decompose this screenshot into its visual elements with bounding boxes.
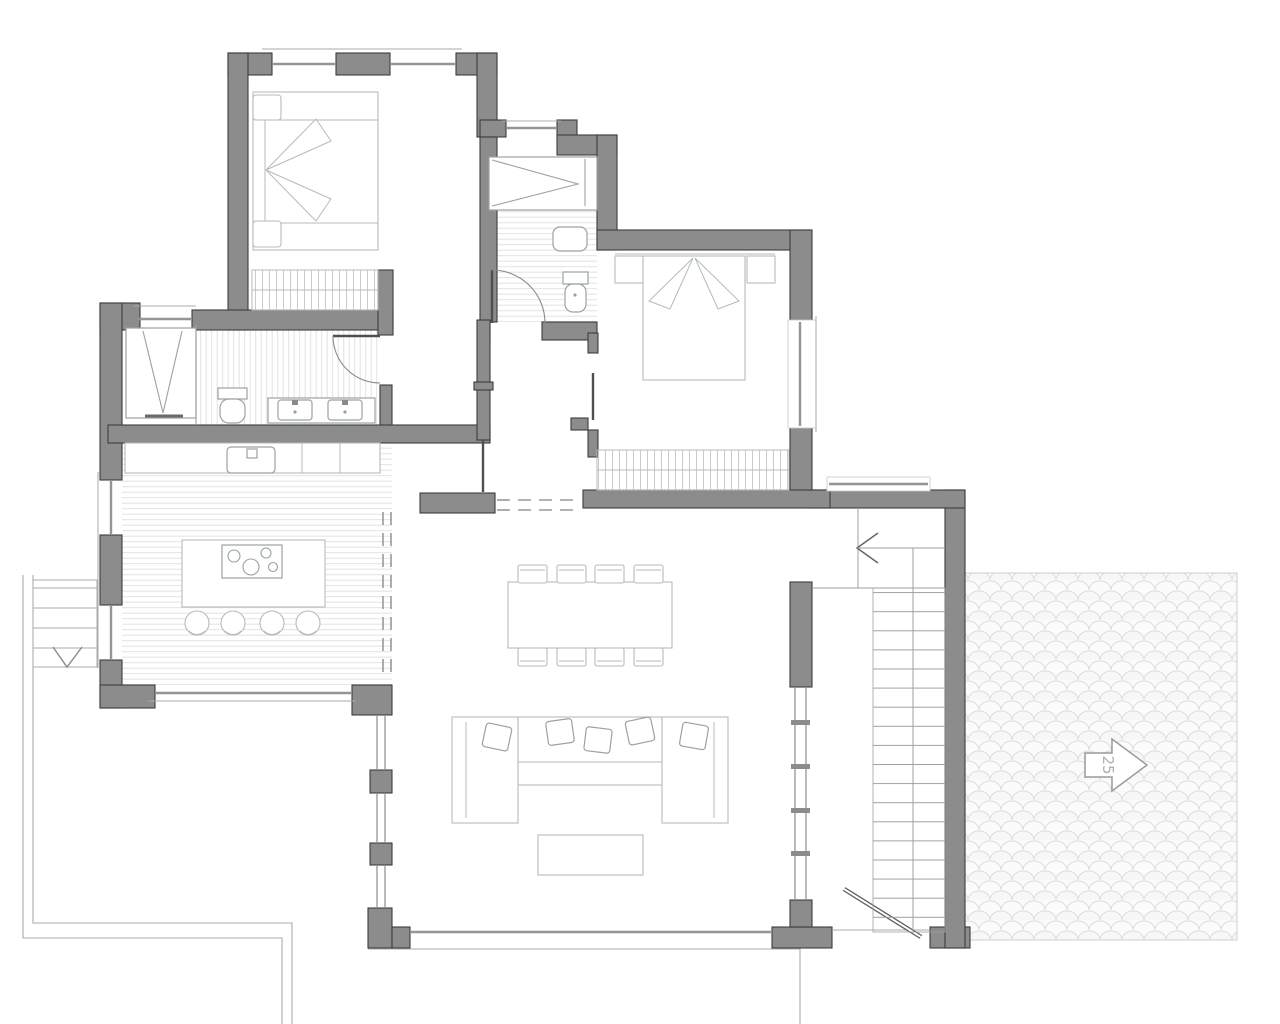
- toilet1-cistern: [218, 388, 247, 399]
- floor-plan-canvas: 25: [0, 0, 1280, 1024]
- exterior-stairs-outline: [33, 580, 97, 667]
- wall-living-west-pier2: [370, 843, 392, 865]
- toilet2-flush: [573, 293, 576, 296]
- bedroom2: [597, 254, 789, 490]
- chair-1: [518, 565, 547, 583]
- wall-bathroom-top: [192, 310, 393, 330]
- wall-smallbath-top-jamb: [557, 120, 577, 137]
- vanity: [268, 398, 375, 423]
- bed1-pillow-bottom: [253, 221, 281, 247]
- dining-table: [508, 582, 672, 648]
- chair-4: [634, 565, 663, 583]
- drain-right: [343, 410, 346, 413]
- tap-right-icon: [342, 400, 348, 405]
- partition-mullion-2: [791, 764, 810, 769]
- dining-chairs-top: [518, 565, 663, 583]
- wall-living-west-pier1: [370, 770, 392, 793]
- wall-living-south-right: [772, 927, 832, 948]
- toilet1-bowl: [220, 399, 245, 423]
- chair-2: [557, 565, 586, 583]
- patio: 25: [963, 573, 1237, 940]
- pillow-3: [584, 727, 613, 754]
- stool-3: [260, 611, 284, 635]
- bed2-nightstand-right: [747, 256, 775, 283]
- bed2-nightstand-left: [615, 256, 643, 283]
- partition-mullion-1: [791, 720, 810, 725]
- bed2: [643, 256, 745, 380]
- staircase: [813, 508, 945, 932]
- shower2-tray: [489, 157, 597, 210]
- stool-4: [296, 611, 320, 635]
- dining-area: [508, 565, 672, 666]
- wall-kitchen-top: [108, 425, 490, 443]
- bed1-pillow-top: [253, 95, 281, 120]
- wall-west-upper: [100, 303, 122, 480]
- toilet2-cistern: [563, 272, 588, 284]
- chair-7: [595, 648, 624, 666]
- tap-left-icon: [292, 400, 298, 405]
- chair-8: [634, 648, 663, 666]
- living-room: [452, 717, 728, 875]
- pillow-4: [625, 717, 655, 746]
- wall-stair-east: [945, 490, 965, 948]
- stair-treads: [873, 588, 945, 932]
- chair-5: [518, 648, 547, 666]
- stool-1: [185, 611, 209, 635]
- kitchen-faucet-icon: [247, 449, 257, 458]
- coffee-table: [538, 835, 643, 875]
- wall-dining-north-right: [583, 490, 830, 508]
- wall-hall-east-upper: [588, 333, 598, 353]
- arrow-label: 25: [1099, 755, 1117, 774]
- pillow-2: [545, 718, 574, 745]
- stool-2: [221, 611, 245, 635]
- dining-chairs-bottom: [518, 648, 663, 666]
- pillow-5: [679, 722, 709, 750]
- wall-hall-west-jamb: [474, 382, 493, 390]
- wall-smallbath-top-left: [480, 120, 506, 137]
- toilet2: [563, 272, 588, 312]
- window-bedroom2-east-opening: [788, 320, 816, 428]
- wall-bedroom2-door-jamb: [571, 418, 588, 430]
- wall-kitchen-bottom-left: [100, 685, 155, 708]
- bedroom1: [252, 92, 378, 310]
- wall-dining-north-left: [420, 493, 495, 513]
- wall-bathroom-right-lower: [380, 385, 392, 430]
- wall-living-southwest-corner: [368, 908, 392, 948]
- wall-top-pier-2: [336, 53, 390, 75]
- partition-mullion-4: [791, 851, 810, 856]
- wall-bedroom2-right-lower: [790, 426, 812, 498]
- drain-left: [293, 410, 296, 413]
- wall-kitchen-bottom-right: [352, 685, 392, 715]
- wall-west-pier: [100, 535, 122, 605]
- basin2: [553, 227, 587, 251]
- wall-entry-pier: [790, 900, 812, 927]
- cooktop: [222, 545, 282, 578]
- partition-mullion-3: [791, 808, 810, 813]
- wall-stair-partition: [790, 582, 812, 687]
- pillow-1: [482, 723, 512, 752]
- wall-stair-north: [810, 490, 965, 508]
- toilet1: [218, 388, 247, 423]
- exterior-stairs: [33, 580, 97, 667]
- wall-bedroom1-stub: [378, 270, 393, 335]
- wall-bedroom1-left: [228, 53, 248, 330]
- wall-living-south-left: [392, 927, 410, 948]
- wall-bedroom2-top: [597, 230, 810, 250]
- toilet2-bowl: [565, 284, 586, 312]
- chair-3: [595, 565, 624, 583]
- wall-hall-west: [477, 320, 490, 440]
- chair-6: [557, 648, 586, 666]
- wall-bedroom2-right-upper: [790, 230, 812, 322]
